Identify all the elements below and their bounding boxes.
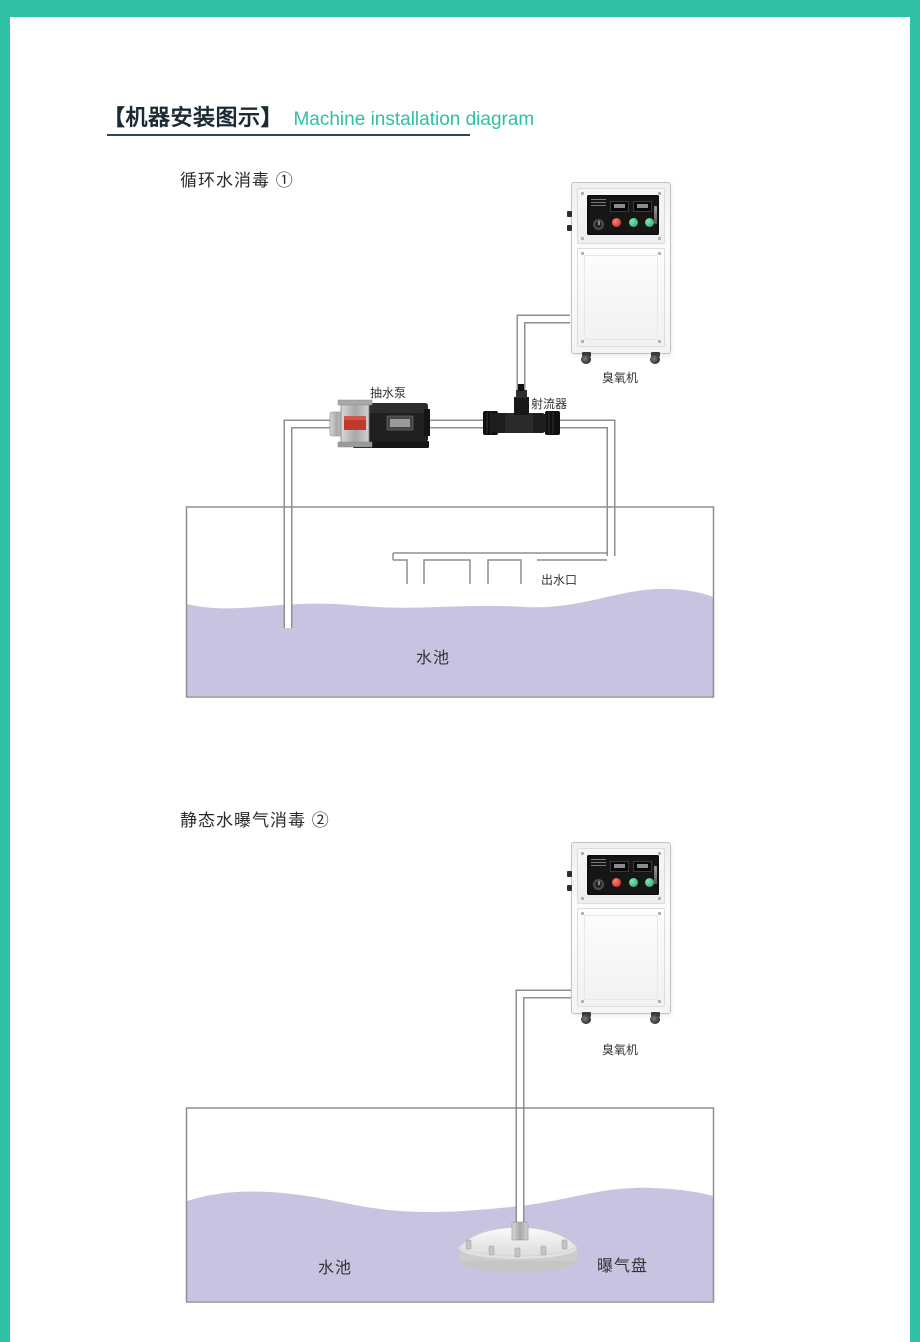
screw-icon	[581, 252, 584, 255]
disc-nozzles	[466, 1240, 567, 1257]
screw-icon	[581, 897, 584, 900]
page-frame-top	[0, 0, 920, 17]
side-fitting	[567, 225, 572, 231]
stop-button	[612, 878, 621, 887]
pipe-discharge	[395, 424, 611, 556]
disc-pipe-sleeve	[512, 1222, 528, 1240]
screw-icon	[658, 912, 661, 915]
control-panel	[587, 195, 659, 235]
control-panel	[587, 855, 659, 895]
screw-icon	[658, 1000, 661, 1003]
pump-base	[353, 441, 429, 448]
timer-knob	[593, 219, 604, 230]
panel-label-text	[591, 859, 606, 868]
caster-wheel	[579, 1012, 594, 1024]
machine-top-section	[577, 188, 665, 244]
pipe-ozone-to-ejector	[521, 319, 570, 404]
pump-inlet-elbow	[330, 412, 344, 436]
screw-icon	[581, 192, 584, 195]
pump-motor	[366, 403, 428, 442]
diagram1-title: 循环水消毒 ①	[180, 166, 294, 191]
screw-icon	[658, 192, 661, 195]
panel-label-text	[591, 199, 606, 208]
outlet-label: 出水口	[541, 571, 577, 588]
digital-display	[633, 861, 652, 872]
aeration-disc	[459, 1228, 577, 1273]
screw-icon	[658, 252, 661, 255]
timer-knob	[593, 879, 604, 890]
screw-icon	[581, 340, 584, 343]
screw-icon	[658, 340, 661, 343]
side-fitting	[567, 885, 572, 891]
side-fitting	[567, 211, 572, 217]
pool2-label: 水池	[318, 1254, 352, 1278]
caster-wheel	[648, 1012, 663, 1024]
water-pump	[330, 400, 430, 448]
aeration-disc-label: 曝气盘	[597, 1252, 648, 1276]
caster-wheel	[579, 352, 594, 364]
ozone-machine1-label: 臭氧机	[571, 369, 669, 386]
digital-display	[610, 201, 629, 212]
caster-wheel	[648, 352, 663, 364]
pipe-suction	[288, 424, 352, 628]
ozone-machine-1	[571, 182, 671, 354]
machine-body-panel	[577, 908, 665, 1007]
pool1-outline	[187, 507, 714, 697]
pool2-water	[187, 1188, 713, 1301]
page-frame-right	[910, 0, 920, 1342]
screw-icon	[658, 237, 661, 240]
screw-icon	[581, 912, 584, 915]
screw-icon	[581, 1000, 584, 1003]
pump-label: 抽水泵	[370, 384, 406, 401]
pump-red-band	[344, 416, 366, 430]
screw-icon	[581, 852, 584, 855]
digital-display	[610, 861, 629, 872]
section-title-en: Machine installation diagram	[293, 109, 534, 130]
ejector-inlet	[514, 397, 529, 415]
ejector-label: 射流器	[531, 395, 567, 412]
section-title-zh: 【机器安装图示】	[103, 105, 283, 130]
title-underline	[107, 134, 470, 136]
screw-icon	[658, 852, 661, 855]
page-frame-left	[0, 0, 10, 1342]
machine-body-panel	[577, 248, 665, 347]
diagram2-title: 静态水曝气消毒 ②	[180, 806, 330, 831]
screw-icon	[658, 897, 661, 900]
pipe-ozone-to-disc	[520, 994, 573, 1229]
ozone-machine2-label: 臭氧机	[571, 1041, 669, 1058]
product-detail-page: 【机器安装图示】 Machine installation diagram 循环…	[0, 0, 920, 1342]
pool1-label: 水池	[416, 644, 450, 668]
power-button	[629, 218, 638, 227]
side-fitting	[567, 871, 572, 877]
brand-logo	[654, 206, 657, 224]
stop-button	[612, 218, 621, 227]
pump-nameplate	[387, 416, 413, 430]
ozone-machine-2	[571, 842, 671, 1014]
disc-dome	[460, 1228, 576, 1257]
run-button	[645, 218, 654, 227]
brand-logo	[654, 866, 657, 884]
installation-diagrams-canvas	[0, 0, 920, 1342]
pump-head	[341, 402, 369, 445]
machine-top-section	[577, 848, 665, 904]
run-button	[645, 878, 654, 887]
power-button	[629, 878, 638, 887]
pool1-water	[187, 589, 713, 696]
section-header: 【机器安装图示】 Machine installation diagram	[103, 100, 534, 132]
digital-display	[633, 201, 652, 212]
screw-icon	[581, 237, 584, 240]
